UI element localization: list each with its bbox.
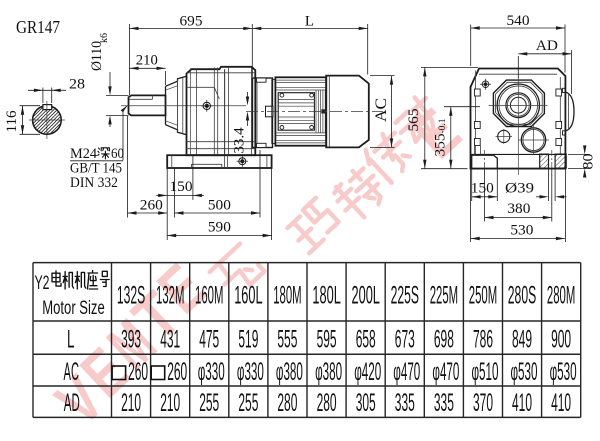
svg-text:210: 210 [136, 53, 158, 69]
svg-text:210: 210 [121, 389, 141, 417]
svg-text:431: 431 [160, 325, 180, 353]
svg-text:280S: 280S [508, 282, 536, 310]
svg-text:590: 590 [208, 220, 231, 236]
svg-text:φ420: φ420 [354, 358, 381, 386]
svg-text:540: 540 [507, 13, 530, 29]
svg-text:410: 410 [551, 389, 571, 417]
svg-text:355: 355 [433, 134, 449, 157]
svg-text:565: 565 [406, 109, 422, 132]
svg-text:150: 150 [471, 180, 494, 196]
svg-text:180M: 180M [273, 282, 301, 310]
svg-text:225M: 225M [430, 282, 458, 310]
svg-text:200L: 200L [352, 282, 380, 310]
svg-text:L: L [67, 325, 75, 353]
svg-text:393: 393 [121, 325, 141, 353]
svg-text:250M: 250M [469, 282, 497, 310]
svg-text:GR147: GR147 [16, 17, 60, 37]
svg-text:280: 280 [317, 389, 337, 417]
svg-text:180L: 180L [312, 282, 340, 310]
svg-text:160L: 160L [234, 282, 262, 310]
svg-text:673: 673 [395, 325, 415, 353]
svg-text:255: 255 [238, 389, 258, 417]
svg-text:132M: 132M [156, 282, 184, 310]
svg-text:849: 849 [512, 325, 532, 353]
svg-text:AD: AD [64, 389, 80, 417]
svg-text:AC: AC [373, 98, 390, 122]
svg-text:Motor Size: Motor Size [42, 298, 105, 319]
svg-text:33.4: 33.4 [232, 127, 248, 153]
svg-text:595: 595 [317, 325, 337, 353]
svg-text:φ330: φ330 [237, 358, 264, 386]
svg-text:L: L [305, 14, 314, 30]
svg-text:380: 380 [507, 201, 530, 217]
svg-text:28: 28 [69, 77, 85, 93]
svg-text:Ø39: Ø39 [505, 180, 534, 196]
svg-text:900: 900 [551, 325, 571, 353]
svg-text:335: 335 [395, 389, 415, 417]
svg-text:k6: k6 [99, 33, 110, 43]
svg-text:260: 260 [167, 358, 187, 386]
svg-text:786: 786 [473, 325, 493, 353]
svg-text:695: 695 [180, 14, 203, 30]
svg-text:-0.1: -0.1 [438, 118, 448, 133]
svg-text:116: 116 [4, 110, 20, 132]
svg-text:475: 475 [199, 325, 219, 353]
svg-text:φ330: φ330 [198, 358, 225, 386]
svg-text:φ470: φ470 [393, 358, 420, 386]
svg-text:698: 698 [434, 325, 454, 353]
svg-text:Y2: Y2 [35, 273, 50, 294]
svg-text:658: 658 [356, 325, 376, 353]
svg-text:132S: 132S [117, 282, 145, 310]
svg-text:335: 335 [434, 389, 454, 417]
svg-text:370: 370 [473, 389, 493, 417]
svg-text:φ530: φ530 [550, 358, 577, 386]
svg-text:305: 305 [356, 389, 376, 417]
svg-text:AD: AD [536, 38, 558, 54]
svg-text:φ510: φ510 [472, 358, 499, 386]
svg-text:260: 260 [128, 358, 148, 386]
svg-text:280: 280 [277, 389, 297, 417]
svg-text:260: 260 [140, 197, 163, 213]
svg-text:AC: AC [64, 358, 80, 386]
svg-text:519: 519 [238, 325, 258, 353]
svg-text:555: 555 [277, 325, 297, 353]
svg-text:530: 530 [510, 222, 533, 238]
svg-text:500: 500 [208, 197, 231, 213]
svg-text:φ470: φ470 [432, 358, 459, 386]
svg-text:280M: 280M [547, 282, 575, 310]
svg-text:410: 410 [512, 389, 532, 417]
svg-text:225S: 225S [391, 282, 419, 310]
svg-text:210: 210 [160, 389, 180, 417]
svg-text:φ380: φ380 [276, 358, 303, 386]
svg-text:DIN 332: DIN 332 [70, 175, 118, 191]
svg-text:φ380: φ380 [315, 358, 342, 386]
svg-text:φ530: φ530 [511, 358, 538, 386]
svg-text:160M: 160M [195, 282, 223, 310]
svg-text:255: 255 [199, 389, 219, 417]
svg-text:150: 150 [170, 179, 193, 195]
svg-text:Ø110: Ø110 [89, 41, 105, 71]
svg-text:80: 80 [580, 154, 596, 170]
